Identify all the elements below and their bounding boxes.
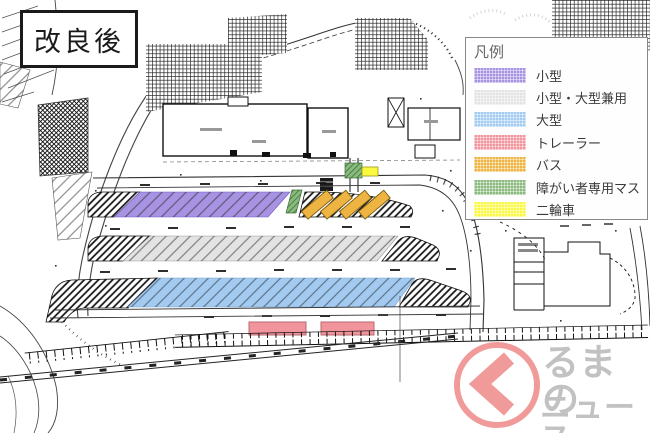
logo-text-line2: ニュース [540, 392, 650, 433]
ku-glyph-icon [462, 350, 532, 420]
legend-label: 小型 [536, 66, 562, 85]
building-right [408, 108, 460, 140]
screenshot-canvas: 改良後 凡例 小型 小型・大型兼用 大型 トレーラー バス 障がい者専用マス [0, 0, 650, 433]
vegetation-block-c [355, 18, 428, 70]
legend-swatch-disabled [474, 180, 526, 195]
parking-row-large [46, 278, 470, 322]
buildings [163, 97, 460, 192]
parking-row-small [88, 190, 413, 219]
vegetation-block-b [228, 14, 287, 58]
legend-label: 障がい者専用マス [536, 178, 640, 197]
vegetation-block-left [38, 98, 88, 176]
legend-swatch-bus [474, 157, 526, 172]
fence-left [25, 332, 230, 364]
legend-row-small: 小型 [474, 64, 647, 86]
legend-row-motorcycle: 二輪車 [474, 198, 647, 220]
legend-row-shared: 小型・大型兼用 [474, 86, 647, 108]
parking-row-shared [88, 236, 439, 261]
legend-swatch-trailer [474, 135, 526, 150]
legend-label: バス [536, 155, 562, 174]
legend-swatch-shared [474, 90, 526, 105]
legend-row-large: 大型 [474, 109, 647, 131]
legend-panel: 凡例 小型 小型・大型兼用 大型 トレーラー バス 障がい者専用マス 二輪車 [465, 37, 648, 220]
motorcycle-space [362, 167, 378, 176]
legend-row-bus: バス [474, 154, 647, 176]
legend-swatch-large [474, 112, 526, 127]
legend-label: 小型・大型兼用 [536, 88, 627, 107]
legend-label: 二輪車 [536, 200, 575, 219]
legend-title: 凡例 [474, 41, 647, 62]
legend-label: トレーラー [536, 133, 601, 152]
drawing-title: 改良後 [34, 20, 124, 59]
drawing-title-box: 改良後 [20, 10, 138, 68]
legend-swatch-small [474, 68, 526, 83]
building-main [163, 104, 307, 156]
kuruma-no-news-logo: るまの ニュース [452, 340, 650, 433]
legend-swatch-motorcycle [474, 202, 526, 217]
legend-row-disabled: 障がい者専用マス [474, 176, 647, 198]
legend-label: 大型 [536, 110, 562, 129]
legend-row-trailer: トレーラー [474, 131, 647, 153]
structure-right [500, 222, 650, 330]
